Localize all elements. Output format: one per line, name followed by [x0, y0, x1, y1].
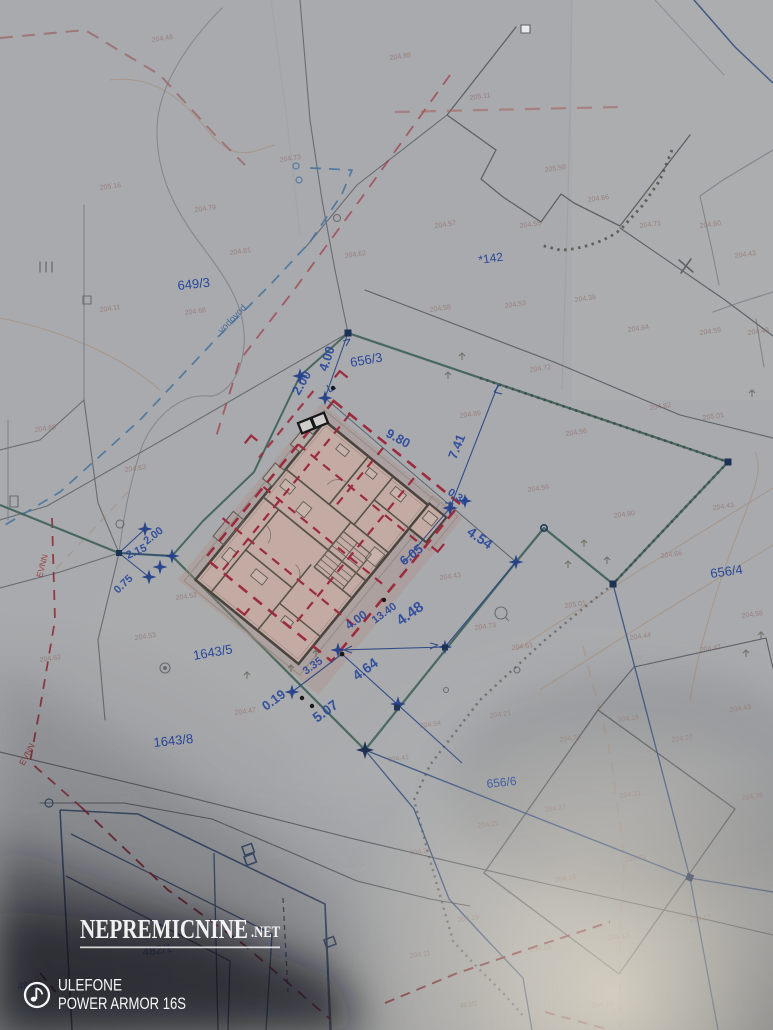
- svg-text:.NET: .NET: [251, 924, 281, 941]
- svg-text:NEPREMICNINE: NEPREMICNINE: [80, 914, 248, 944]
- svg-text:POWER ARMOR 16S: POWER ARMOR 16S: [58, 995, 186, 1013]
- svg-text:ULEFONE: ULEFONE: [58, 977, 122, 995]
